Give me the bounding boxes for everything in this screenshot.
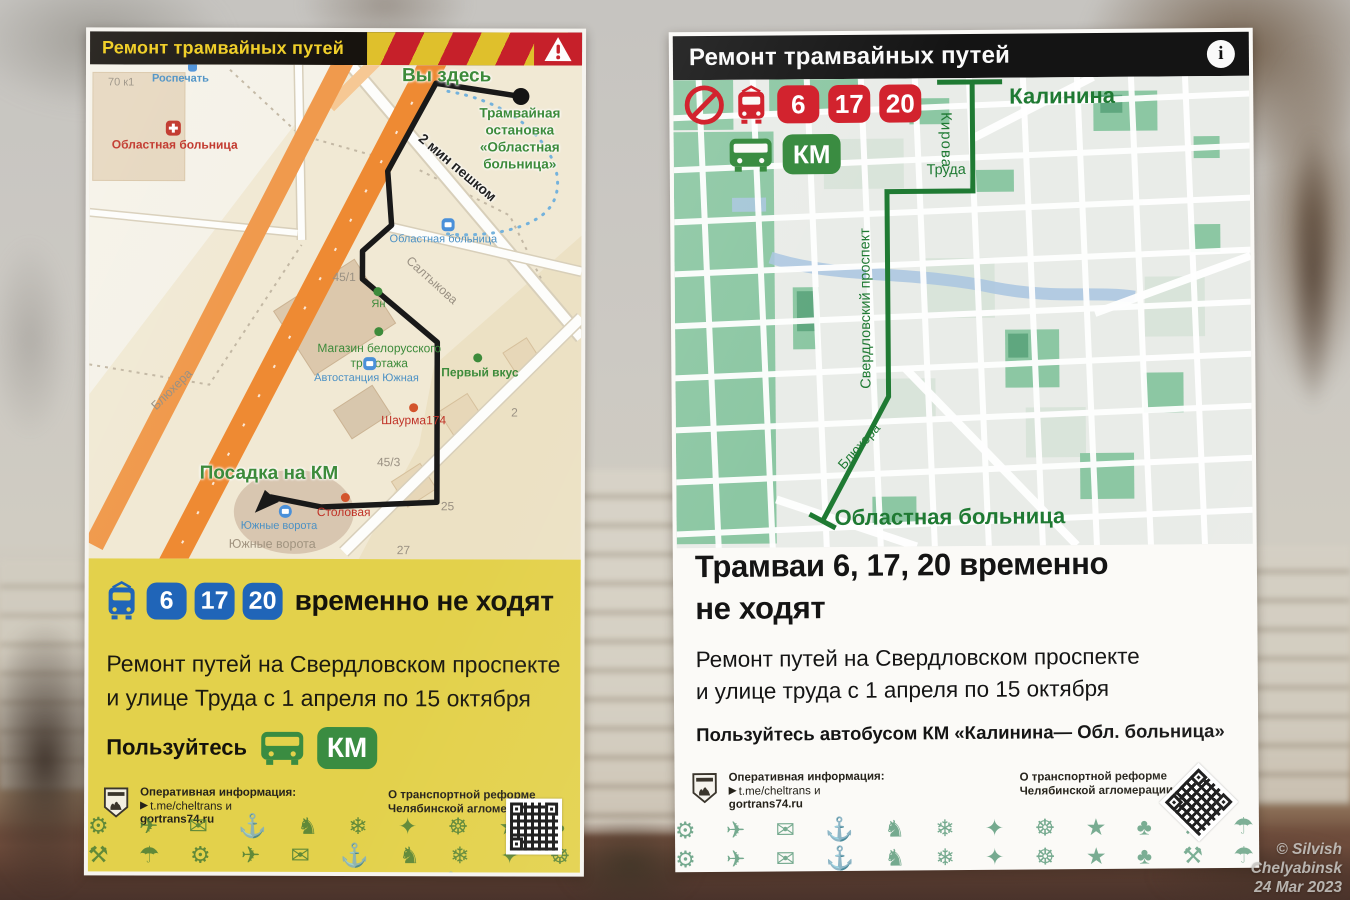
map-label-building-25: 25	[441, 499, 454, 513]
km-bus-row: КМ	[728, 133, 922, 175]
right-footer: Оперативная информация: t.me/cheltrans и…	[691, 771, 885, 813]
map-label-hospital-terminal: Областная больница	[834, 503, 1065, 531]
map-label-building-45-3: 45/3	[377, 455, 400, 469]
right-headline: Трамваи 6, 17, 20 временно не ходят	[695, 542, 1242, 630]
map-label-you-are-here: Вы здесь	[402, 65, 491, 87]
watermark-line3: 24 Mar 2023	[1251, 878, 1342, 897]
left-notice-body-line1: Ремонт путей на Свердловском проспекте	[106, 646, 560, 681]
yan-poi-icon	[373, 287, 382, 296]
bus-icon-green	[728, 135, 774, 173]
left-routes-row: 6 17 20 временно не ходят	[105, 580, 554, 621]
footer-info-title: Оперативная информация:	[140, 786, 296, 800]
photo-watermark: © Silvish Chelyabinsk 24 Mar 2023	[1251, 840, 1342, 897]
left-qr-code	[506, 798, 562, 854]
hospital-marker-icon	[166, 121, 181, 136]
map-label-yan: Ян	[371, 298, 385, 310]
brick-wall-right	[1246, 545, 1350, 805]
watermark-line2: Chelyabinsk	[1251, 859, 1342, 878]
right-footer-info-telegram: t.me/cheltrans и	[739, 785, 821, 798]
right-body: Ремонт путей на Свердловском проспекте и…	[696, 640, 1242, 708]
map-label-shop-line2: трикотажа	[294, 356, 464, 370]
right-body-line2: и улице труда с 1 апреля по 15 октября	[696, 672, 1242, 708]
map-label-sverdlovsky-prospekt: Свердловский проспект	[857, 228, 874, 389]
right-headline-line1: Трамваи 6, 17, 20 временно	[695, 542, 1241, 588]
map-label-building-27: 27	[397, 543, 410, 557]
right-footer-reform-line2: Челябинской агломерации:	[1020, 784, 1177, 797]
tram-icon	[105, 580, 139, 620]
shaurma-icon	[409, 403, 418, 412]
map-label-south-gates-stop: Южные ворота	[241, 520, 318, 532]
banned-route-badge-20: 20	[879, 84, 921, 122]
right-footer-pattern: ⚙ ✈ ✉ ⚓ ♞ ❄ ✦ ☸ ★ ♣ ⚒ ☂ ⚙ ✈ ✉ ⚓ ♞ ❄ ✦ ☸ …	[675, 812, 1259, 873]
left-map: 70 к1 Роспечать Областная больница Вы зд…	[89, 64, 582, 559]
map-label-south-gates-area: Южные ворота	[229, 537, 316, 551]
south-gates-stop-icon	[279, 505, 292, 518]
map-label-perviy-vkus: Первый вкус	[441, 365, 518, 379]
tram-icon-red	[734, 85, 768, 125]
left-poster: Ремонт трамвайных путей	[84, 27, 586, 876]
left-notice-headline: временно не ходят	[295, 585, 554, 618]
right-poster-title: Ремонт трамвайных путей	[673, 42, 1010, 73]
map-label-bus-station: Автостанция Южная	[314, 372, 419, 384]
right-footer-reform: О транспортной реформе Челябинской аглом…	[1020, 770, 1177, 798]
map-label-hospital-stop: Областная больница	[390, 233, 498, 245]
map-label-rospechat: Роспечать	[152, 73, 209, 85]
route-badge-17: 17	[195, 582, 235, 619]
telegram-icon	[140, 801, 148, 809]
left-poster-title: Ремонт трамвайных путей	[90, 37, 344, 59]
right-footer-info-site: gortrans74.ru	[729, 798, 803, 811]
right-footer-reform-line1: О транспортной реформе	[1020, 770, 1167, 783]
no-entry-icon	[683, 84, 725, 126]
left-qr-modules	[510, 802, 558, 850]
left-notice-body-line2: и улице Труда с 1 апреля по 15 октября	[106, 680, 560, 715]
shop-poi-icon	[374, 327, 383, 336]
km-badge: КМ	[317, 727, 377, 769]
footer-info-telegram: t.me/cheltrans и	[150, 800, 232, 812]
photo-scene: Ремонт трамвайных путей	[0, 0, 1350, 900]
info-icon: i	[1207, 40, 1235, 68]
coat-of-arms-icon-right	[691, 772, 719, 804]
bus-icon	[259, 729, 305, 767]
banned-route-badge-17: 17	[828, 85, 870, 123]
left-notice-body: Ремонт путей на Свердловском проспекте и…	[106, 646, 560, 715]
hospital-stop-icon	[442, 218, 455, 231]
map-label-building-2: 2	[511, 405, 518, 419]
bus-station-icon	[363, 357, 376, 370]
branch-twig	[1290, 130, 1336, 410]
right-footer-info-title: Оперативная информация:	[729, 771, 885, 786]
map-label-building-70k1: 70 к1	[108, 76, 134, 88]
right-headline-line2: не ходят	[695, 584, 1241, 630]
left-use-row: Пользуйтесь КМ	[106, 726, 377, 769]
telegram-icon-right	[729, 786, 737, 794]
left-poster-header: Ремонт трамвайных путей	[90, 31, 582, 65]
route-badge-20: 20	[243, 582, 283, 619]
right-icons-overlay: 6 17 20 КМ	[683, 82, 922, 175]
map-label-shop-line1: Магазин белорусского	[294, 341, 464, 355]
use-label: Пользуйтесь	[106, 734, 247, 760]
warning-triangle-icon	[534, 33, 582, 66]
right-cta: Пользуйтесь автобусом КМ «Калинина— Обл.…	[696, 720, 1242, 746]
map-label-kirova-street: Кирова	[937, 112, 954, 168]
map-label-shaurma: Шаурма174	[381, 413, 446, 427]
right-body-line1: Ремонт путей на Свердловском проспекте	[696, 640, 1242, 676]
left-notice-panel: 6 17 20 временно не ходят Ремонт путей н…	[88, 558, 581, 872]
banned-route-badge-6: 6	[777, 85, 819, 123]
right-poster-header: Ремонт трамвайных путей i	[673, 32, 1249, 81]
left-margin-smudge	[0, 240, 70, 440]
right-footer-info: Оперативная информация: t.me/cheltrans и…	[729, 771, 885, 813]
map-label-hospital-poi: Областная больница	[112, 137, 238, 151]
tram-stop-callout-line3: «Областная	[445, 139, 582, 154]
right-notice-text: Трамваи 6, 17, 20 временно не ходят Ремо…	[695, 542, 1243, 746]
tram-stop-callout-line1: Трамвайная	[445, 105, 582, 120]
watermark-line1: © Silvish	[1251, 840, 1342, 859]
rospechat-kiosk-icon	[188, 64, 197, 71]
km-badge-right: КМ	[783, 134, 841, 174]
tram-stop-callout-line2: остановка	[445, 122, 582, 137]
brick-wall-left	[0, 560, 88, 790]
map-label-km-boarding: Посадка на КМ	[184, 463, 354, 485]
map-label-building-45-1: 45/1	[332, 270, 355, 284]
banned-routes-row: 6 17 20	[683, 82, 921, 126]
stolovaya-icon	[341, 493, 350, 502]
map-label-stolovaya: Столовая	[317, 505, 371, 519]
map-label-kalinina: Калинина	[1009, 83, 1115, 110]
perviy-vkus-icon	[473, 353, 482, 362]
branches-right-edge	[1252, 40, 1350, 400]
right-poster: Ремонт трамвайных путей i	[669, 28, 1260, 873]
route-badge-6: 6	[147, 582, 187, 619]
